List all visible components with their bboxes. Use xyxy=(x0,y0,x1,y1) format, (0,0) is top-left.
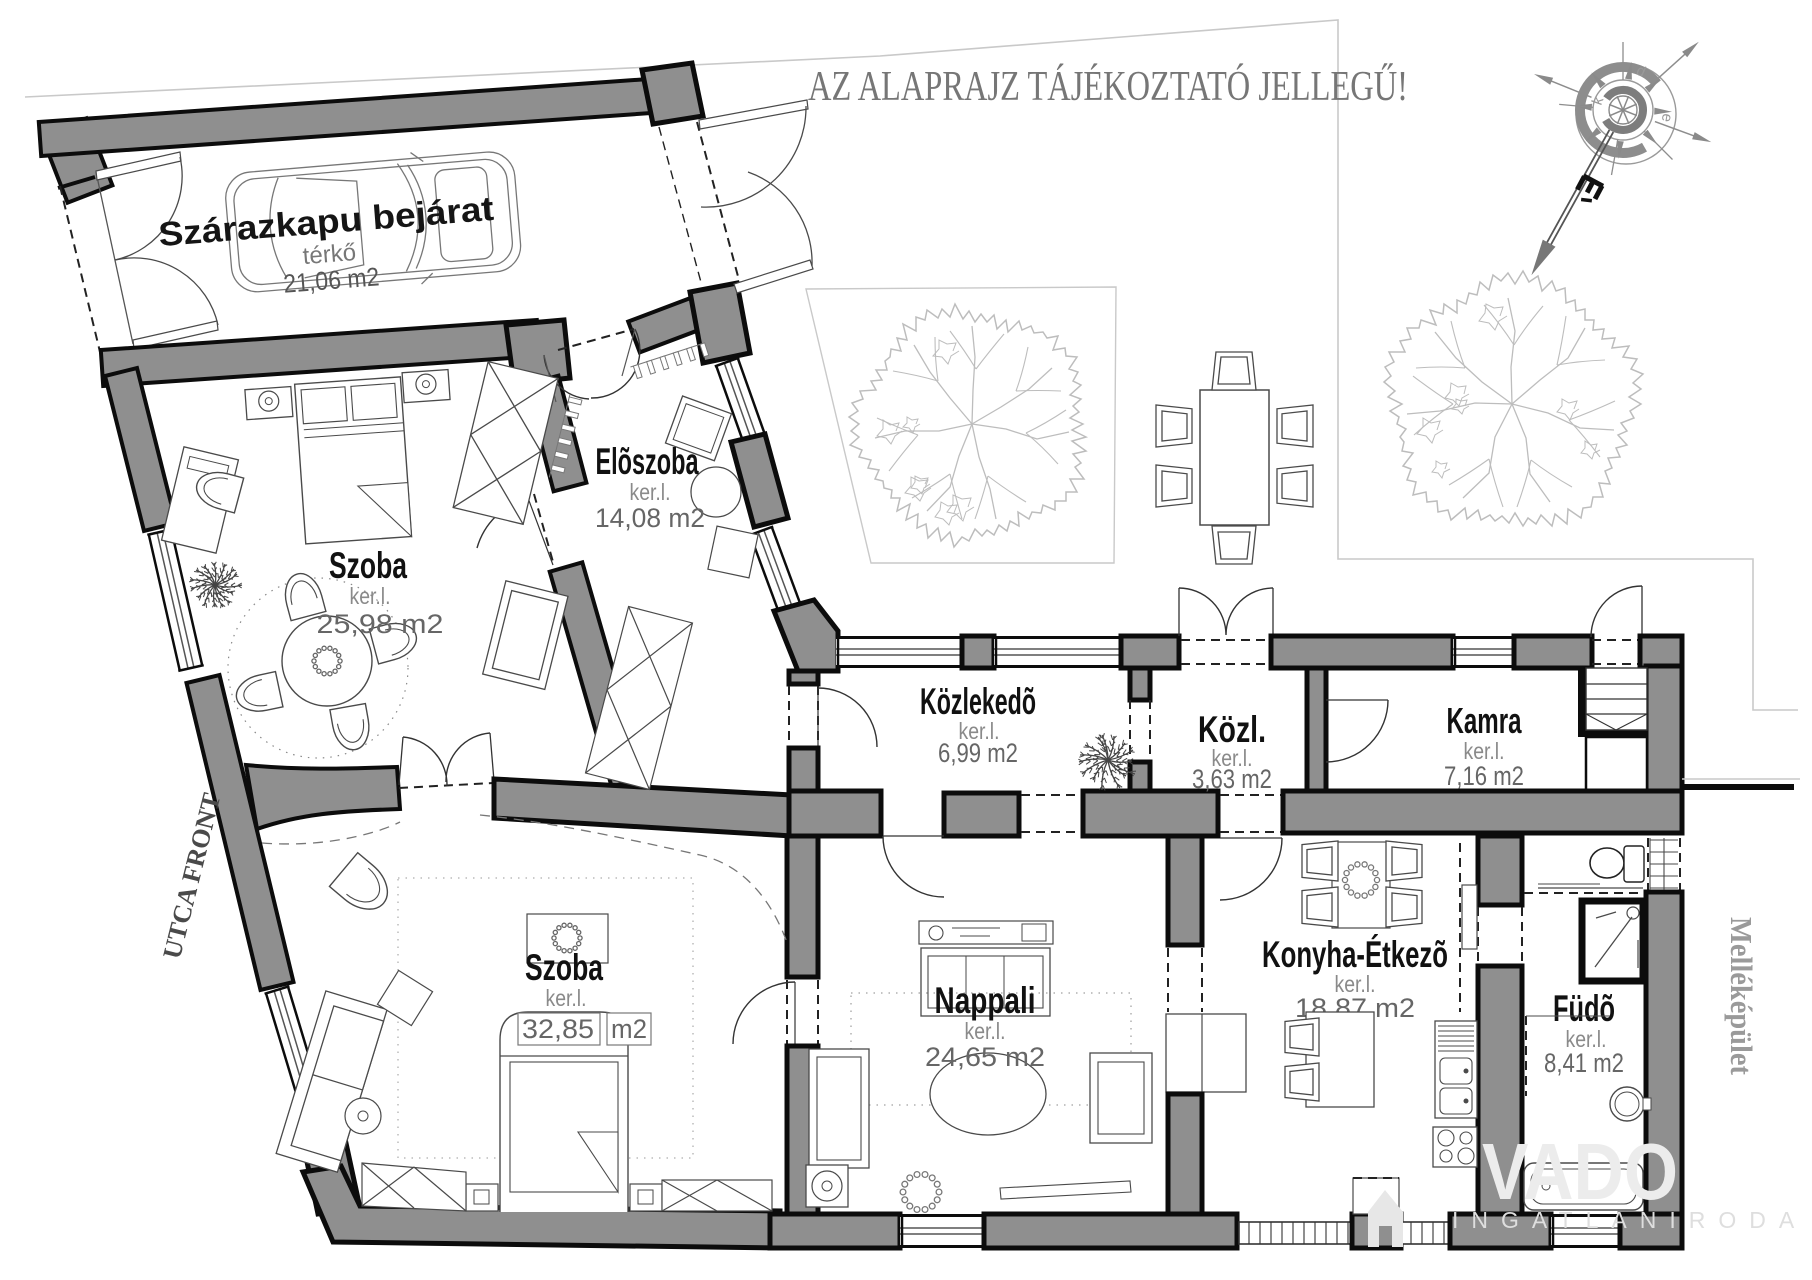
svg-text:m2: m2 xyxy=(611,1014,647,1044)
svg-text:Közlekedõ: Közlekedõ xyxy=(920,681,1036,722)
svg-text:Füdõ: Füdõ xyxy=(1553,988,1615,1029)
svg-text:8,41 m2: 8,41 m2 xyxy=(1544,1048,1624,1078)
svg-text:Szoba: Szoba xyxy=(329,545,407,586)
svg-text:Konyha-Étkezõ: Konyha-Étkezõ xyxy=(1262,934,1448,975)
svg-text:Közl.: Közl. xyxy=(1198,709,1266,750)
svg-text:Szoba: Szoba xyxy=(525,947,603,988)
svg-text:AZ ALAPRAJZ TÁJÉKOZTATÓ JELLEG: AZ ALAPRAJZ TÁJÉKOZTATÓ JELLEGŰ! xyxy=(808,63,1408,110)
svg-text:14,08 m2: 14,08 m2 xyxy=(595,503,705,533)
svg-text:ker.l.: ker.l. xyxy=(965,1018,1006,1044)
svg-text:Melléképület: Melléképület xyxy=(1724,917,1759,1076)
svg-text:24,65 m2: 24,65 m2 xyxy=(925,1042,1045,1072)
svg-text:6,99 m2: 6,99 m2 xyxy=(938,738,1018,768)
svg-text:7,16 m2: 7,16 m2 xyxy=(1444,761,1524,791)
svg-text:VADO: VADO xyxy=(1482,1127,1678,1216)
svg-text:32,85: 32,85 xyxy=(522,1014,594,1044)
svg-text:ker.l.: ker.l. xyxy=(546,985,587,1011)
svg-text:25,98 m2: 25,98 m2 xyxy=(317,609,444,639)
svg-text:ker.l.: ker.l. xyxy=(630,479,671,505)
svg-text:Elõszoba: Elõszoba xyxy=(596,441,699,482)
svg-text:INGATLANIRODA: INGATLANIRODA xyxy=(1452,1207,1807,1233)
svg-text:ker.l.: ker.l. xyxy=(350,583,391,609)
svg-text:3,63 m2: 3,63 m2 xyxy=(1192,764,1272,794)
svg-text:Kamra: Kamra xyxy=(1447,700,1523,741)
svg-text:Nappali: Nappali xyxy=(935,980,1036,1021)
